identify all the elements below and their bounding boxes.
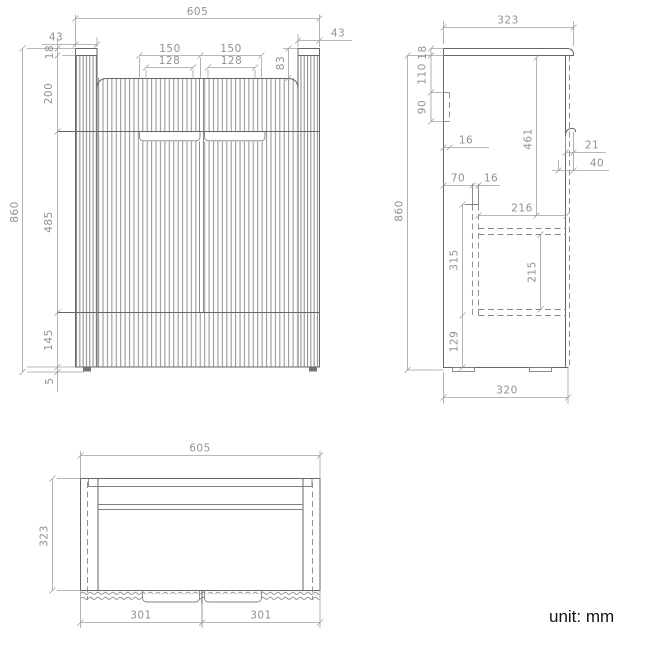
dim-side-hanger-height: 90 bbox=[417, 100, 429, 114]
dim-front-foot: 5 bbox=[44, 377, 56, 384]
top-post-hidden-lines bbox=[88, 482, 313, 600]
top-left-recess-clear bbox=[143, 594, 200, 602]
dim-side-hanger-depth: 16 bbox=[459, 135, 473, 147]
dim-side-top-thickness: 18 bbox=[417, 45, 429, 59]
front-left-foot bbox=[83, 368, 91, 372]
top-flute-wave-row2 bbox=[81, 596, 320, 601]
dim-top-left-door: 301 bbox=[130, 610, 152, 622]
top-view: 605 323 301 301 bbox=[39, 443, 324, 629]
dim-side-drawer-zone: 315 bbox=[449, 249, 461, 271]
unit-label: unit: mm bbox=[549, 607, 614, 626]
side-extension-lines bbox=[408, 21, 574, 404]
dim-side-drawer-depth: 216 bbox=[511, 203, 533, 215]
front-right-handle-clear bbox=[204, 132, 265, 141]
dim-front-upper-section: 200 bbox=[43, 83, 55, 105]
front-view-geometry bbox=[58, 49, 320, 372]
side-drawer-box-hidden bbox=[473, 205, 567, 316]
dim-front-overall-height: 860 bbox=[9, 201, 21, 223]
top-right-recess-clear bbox=[205, 594, 262, 602]
dim-top-right-door: 301 bbox=[250, 610, 272, 622]
dim-side-drawer-inner: 215 bbox=[527, 261, 539, 283]
side-top-panel bbox=[444, 49, 574, 56]
top-view-geometry bbox=[81, 479, 321, 627]
side-view-dimensions bbox=[405, 21, 610, 404]
dim-front-door-section: 485 bbox=[43, 211, 55, 233]
technical-drawing-page: 605 43 43 150 150 128 128 83 18 200 485 … bbox=[0, 0, 650, 650]
vanity-dimension-drawing: 605 43 43 150 150 128 128 83 18 200 485 … bbox=[0, 0, 650, 650]
front-left-handle-clear bbox=[139, 132, 200, 141]
front-body-fluting bbox=[98, 78, 297, 367]
dim-front-top-recess: 83 bbox=[275, 56, 287, 70]
side-dimension-ticks bbox=[405, 25, 577, 401]
top-post-inner-edges bbox=[98, 479, 303, 591]
dim-side-top-depth: 323 bbox=[497, 15, 519, 27]
dim-front-top-thickness: 18 bbox=[44, 45, 56, 59]
dim-side-front-height: 461 bbox=[523, 128, 535, 150]
dim-front-right-handle-inner: 128 bbox=[221, 55, 243, 67]
dim-top-overall-depth: 323 bbox=[39, 525, 51, 547]
dim-top-overall-width: 605 bbox=[189, 443, 211, 455]
front-left-post-fluting bbox=[76, 56, 97, 368]
side-dimension-lines bbox=[408, 28, 610, 398]
dim-side-hanger-offset: 110 bbox=[417, 63, 429, 85]
side-back-foot bbox=[530, 368, 552, 372]
dim-front-right-handle: 150 bbox=[220, 43, 242, 55]
dim-side-drawer-back-gap: 70 bbox=[451, 173, 465, 185]
side-view-geometry bbox=[444, 49, 576, 372]
dim-front-left-post: 43 bbox=[49, 32, 63, 44]
side-handle-lip-profile bbox=[566, 129, 576, 136]
side-front-foot bbox=[453, 368, 475, 372]
dim-side-body-depth: 320 bbox=[496, 385, 518, 397]
dim-side-base-zone: 129 bbox=[449, 331, 461, 353]
side-view-labels: 323 18 110 90 16 461 21 40 70 16 216 315… bbox=[394, 15, 605, 397]
front-right-post-fluting bbox=[299, 56, 320, 368]
dim-front-left-handle: 150 bbox=[159, 43, 181, 55]
front-view: 605 43 43 150 150 128 128 83 18 200 485 … bbox=[9, 6, 352, 392]
dim-side-handle-recess: 40 bbox=[590, 158, 604, 170]
front-right-foot bbox=[309, 368, 317, 372]
dim-side-handle-lip: 21 bbox=[585, 140, 599, 152]
dim-front-overall-width: 605 bbox=[187, 6, 209, 18]
top-outer-outline bbox=[81, 479, 321, 591]
top-back-panel-lines bbox=[89, 479, 313, 510]
dim-side-overall-height: 860 bbox=[394, 200, 406, 222]
dim-front-right-post: 43 bbox=[331, 28, 345, 40]
dim-side-panel-thickness: 16 bbox=[484, 173, 498, 185]
side-wall-hanger-hidden bbox=[444, 93, 450, 122]
top-flute-wave-row1 bbox=[81, 591, 320, 596]
dim-front-drawer-section: 145 bbox=[43, 329, 55, 351]
side-view: 323 18 110 90 16 461 21 40 70 16 216 315… bbox=[394, 15, 610, 405]
dim-front-left-handle-inner: 128 bbox=[159, 55, 181, 67]
